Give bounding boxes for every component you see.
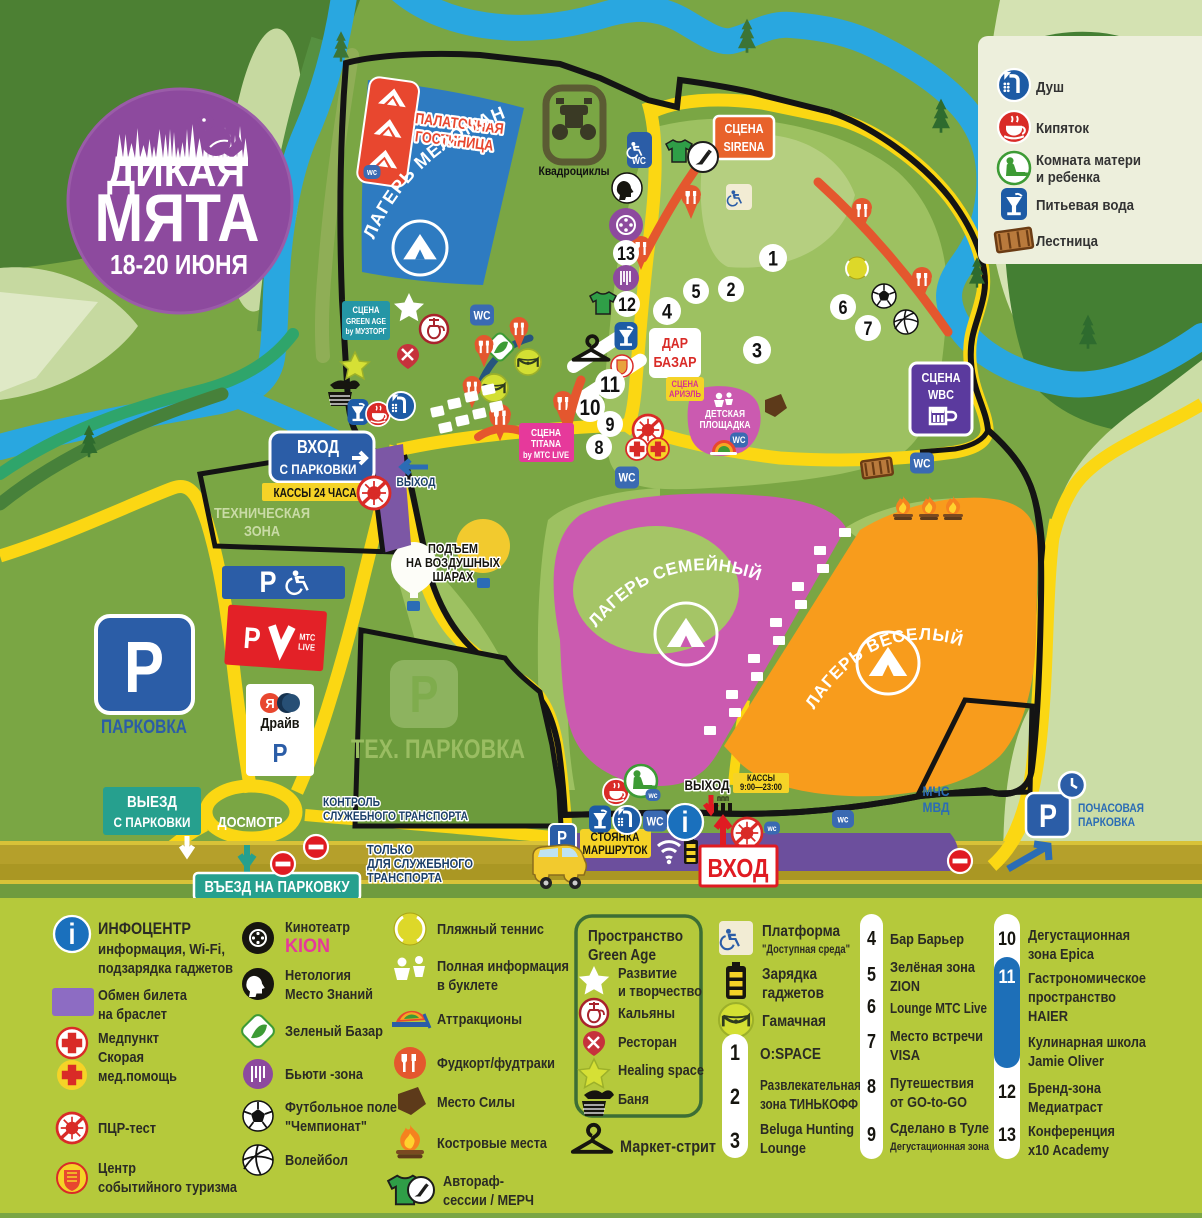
svg-text:Пространство: Пространство [588, 928, 683, 945]
svg-text:Центр: Центр [98, 1160, 136, 1177]
svg-text:пространство: пространство [1028, 989, 1116, 1006]
svg-text:Развитие: Развитие [618, 965, 677, 982]
svg-text:Полная информация: Полная информация [437, 958, 569, 975]
svg-text:Бар Барьер: Бар Барьер [890, 931, 964, 948]
svg-text:событийного туризма: событийного туризма [98, 1179, 238, 1196]
svg-text:ДОСМОТР: ДОСМОТР [218, 814, 283, 831]
svg-text:зона Epica: зона Epica [1028, 946, 1095, 963]
svg-text:Дегустационная: Дегустационная [1028, 927, 1130, 944]
svg-text:ВЫХОД: ВЫХОД [685, 777, 730, 793]
svg-text:WC: WC [619, 470, 636, 484]
svg-text:от GO-to-GO: от GO-to-GO [890, 1094, 967, 1111]
svg-text:Сделано в Туле: Сделано в Туле [890, 1120, 989, 1137]
svg-text:Зелёная зона: Зелёная зона [890, 959, 976, 976]
svg-text:Скорая: Скорая [98, 1049, 144, 1066]
svg-text:ВЫХОД: ВЫХОД [397, 475, 436, 489]
svg-text:4: 4 [867, 928, 877, 950]
svg-text:Фудкорт/фудтраки: Фудкорт/фудтраки [437, 1055, 555, 1072]
svg-text:ДЛЯ СЛУЖЕБНОГО: ДЛЯ СЛУЖЕБНОГО [367, 856, 473, 871]
svg-text:HAIER: HAIER [1028, 1008, 1068, 1025]
svg-text:wc: wc [366, 167, 377, 177]
svg-text:и ребенка: и ребенка [1036, 169, 1101, 186]
svg-text:Бренд-зона: Бренд-зона [1028, 1080, 1102, 1097]
svg-text:МАРШРУТОК: МАРШРУТОК [583, 843, 649, 857]
svg-text:Костровые места: Костровые места [437, 1135, 548, 1152]
svg-text:8: 8 [595, 438, 604, 459]
svg-text:Аттракционы: Аттракционы [437, 1011, 522, 1028]
svg-text:wc: wc [767, 824, 777, 833]
svg-text:С ПАРКОВКИ: С ПАРКОВКИ [280, 461, 357, 477]
svg-text:МЧС: МЧС [923, 783, 950, 799]
svg-text:АРИЭЛЬ: АРИЭЛЬ [669, 389, 701, 399]
svg-text:13: 13 [998, 1125, 1016, 1146]
svg-text:P: P [242, 622, 261, 656]
svg-text:P: P [273, 738, 288, 768]
svg-text:Обмен билета: Обмен билета [98, 987, 188, 1004]
svg-text:18-20 ИЮНЯ: 18-20 ИЮНЯ [110, 249, 248, 280]
svg-text:P: P [260, 566, 277, 599]
svg-text:Место Знаний: Место Знаний [285, 986, 373, 1003]
svg-text:Green Age: Green Age [588, 947, 656, 964]
svg-text:i: i [69, 918, 76, 951]
svg-text:Гамачная: Гамачная [762, 1013, 826, 1030]
svg-text:МВД: МВД [923, 799, 950, 815]
svg-text:Конференция: Конференция [1028, 1123, 1115, 1140]
svg-text:WBC: WBC [928, 387, 955, 402]
svg-text:Пляжный теннис: Пляжный теннис [437, 921, 544, 938]
svg-text:Кипяток: Кипяток [1036, 120, 1089, 137]
svg-text:ТЕХНИЧЕСКАЯ: ТЕХНИЧЕСКАЯ [214, 505, 310, 522]
svg-text:СЦЕНА: СЦЕНА [672, 379, 699, 389]
svg-text:"Доступная среда": "Доступная среда" [762, 942, 850, 956]
svg-text:Лестница: Лестница [1036, 233, 1099, 250]
svg-text:ДАР: ДАР [662, 335, 688, 352]
svg-text:ппп: ппп [717, 794, 729, 803]
svg-text:2: 2 [727, 280, 736, 301]
svg-text:9:00—23:00: 9:00—23:00 [740, 782, 782, 792]
svg-text:by МТС LIVE: by МТС LIVE [523, 450, 569, 460]
svg-text:WC: WC [632, 156, 646, 167]
svg-text:Дегустационная зона: Дегустационная зона [890, 1141, 990, 1153]
svg-text:P: P [124, 628, 164, 708]
svg-text:Я: Я [265, 696, 274, 711]
svg-text:Медпункт: Медпункт [98, 1030, 159, 1047]
svg-text:8: 8 [867, 1076, 876, 1098]
svg-text:С ПАРКОВКИ: С ПАРКОВКИ [114, 814, 191, 830]
svg-text:Lounge MTC Live: Lounge MTC Live [890, 1000, 987, 1017]
svg-text:ШАРАХ: ШАРАХ [433, 569, 474, 584]
svg-text:Автораф-: Автораф- [443, 1173, 504, 1190]
svg-text:и творчество: и творчество [618, 983, 702, 1000]
svg-text:6: 6 [867, 996, 876, 1018]
svg-text:Lounge: Lounge [760, 1140, 806, 1157]
svg-text:ПАРКОВКА: ПАРКОВКА [101, 717, 187, 738]
svg-text:Нетология: Нетология [285, 967, 351, 984]
svg-text:KION: KION [285, 936, 330, 957]
svg-text:СЦЕНА: СЦЕНА [531, 428, 561, 439]
svg-text:"Чемпионат": "Чемпионат" [285, 1118, 367, 1135]
svg-text:ПАРКОВКА: ПАРКОВКА [1078, 815, 1135, 829]
svg-text:Место Силы: Место Силы [437, 1094, 515, 1111]
svg-text:ЗОНА: ЗОНА [244, 523, 280, 540]
svg-text:Гастрономическое: Гастрономическое [1028, 970, 1146, 987]
svg-text:Маркет-стрит: Маркет-стрит [620, 1137, 716, 1156]
svg-text:5: 5 [692, 282, 701, 303]
svg-text:СЛУЖЕБНОГО ТРАНСПОРТА: СЛУЖЕБНОГО ТРАНСПОРТА [323, 809, 468, 823]
svg-text:ВЫЕЗД: ВЫЕЗД [127, 794, 178, 811]
svg-text:9: 9 [867, 1124, 876, 1146]
svg-text:Комната матери: Комната матери [1036, 152, 1141, 169]
svg-text:P: P [1039, 798, 1057, 834]
svg-text:i: i [682, 806, 689, 839]
svg-text:ТЕХ. ПАРКОВКА: ТЕХ. ПАРКОВКА [351, 734, 525, 764]
svg-text:гаджетов: гаджетов [762, 985, 824, 1002]
svg-text:2: 2 [730, 1084, 740, 1109]
svg-text:сессии / МЕРЧ: сессии / МЕРЧ [443, 1192, 534, 1209]
svg-text:ПЦР-тест: ПЦР-тест [98, 1120, 156, 1137]
svg-text:Beluga Hunting: Beluga Hunting [760, 1121, 854, 1138]
svg-text:4: 4 [662, 301, 672, 324]
svg-text:WC: WC [914, 456, 931, 470]
svg-text:Кинотеатр: Кинотеатр [285, 919, 350, 936]
svg-text:Медиатраст: Медиатраст [1028, 1099, 1103, 1116]
svg-text:WC: WC [474, 308, 491, 322]
svg-text:9: 9 [606, 415, 615, 436]
svg-text:СЦЕНА: СЦЕНА [353, 305, 380, 315]
svg-text:Платформа: Платформа [762, 923, 840, 940]
svg-text:ПЛОЩАДКА: ПЛОЩАДКА [700, 420, 751, 431]
svg-text:11: 11 [600, 372, 620, 397]
svg-text:wc: wc [837, 815, 849, 826]
svg-text:GREEN AGE: GREEN AGE [346, 317, 387, 326]
svg-text:Ресторан: Ресторан [618, 1034, 677, 1051]
svg-text:1: 1 [730, 1040, 740, 1065]
svg-text:информация, Wi-Fi,: информация, Wi-Fi, [98, 941, 225, 958]
svg-text:Драйв: Драйв [261, 715, 300, 732]
svg-text:ТОЛЬКО: ТОЛЬКО [367, 842, 413, 857]
svg-text:Healing space: Healing space [618, 1062, 704, 1079]
svg-text:SIRENA: SIRENA [724, 139, 766, 154]
svg-text:P: P [410, 666, 439, 724]
svg-text:11: 11 [999, 967, 1016, 988]
svg-text:зона ТИНЬКОФФ: зона ТИНЬКОФФ [760, 1096, 858, 1113]
svg-text:Развлекательная: Развлекательная [760, 1077, 861, 1094]
svg-text:wc: wc [648, 791, 658, 800]
svg-text:WC: WC [647, 814, 664, 828]
svg-text:СЦЕНА: СЦЕНА [725, 121, 765, 136]
svg-text:LIVE: LIVE [298, 642, 316, 653]
svg-text:Место встречи: Место встречи [890, 1028, 983, 1045]
svg-text:мед.помощь: мед.помощь [98, 1068, 177, 1085]
svg-text:НА ВОЗДУШНЫХ: НА ВОЗДУШНЫХ [406, 555, 500, 570]
svg-text:O:SPACE: O:SPACE [760, 1046, 821, 1063]
svg-text:КОНТРОЛЬ: КОНТРОЛЬ [323, 795, 380, 809]
svg-text:ТРАНСПОРТА: ТРАНСПОРТА [367, 870, 443, 885]
svg-text:Зарядка: Зарядка [762, 966, 817, 983]
svg-text:Волейбол: Волейбол [285, 1152, 348, 1169]
svg-text:ВЪЕЗД НА ПАРКОВКУ: ВЪЕЗД НА ПАРКОВКУ [205, 879, 351, 896]
svg-text:в буклете: в буклете [437, 977, 498, 994]
svg-text:Кальяны: Кальяны [618, 1005, 675, 1022]
svg-text:by МУЗТОРГ: by МУЗТОРГ [346, 327, 387, 336]
svg-text:ZION: ZION [890, 978, 920, 995]
svg-text:СЦЕНА: СЦЕНА [922, 370, 962, 385]
svg-text:Путешествия: Путешествия [890, 1075, 974, 1092]
svg-text:ДЕТСКАЯ: ДЕТСКАЯ [705, 409, 745, 420]
svg-text:3: 3 [730, 1128, 740, 1153]
svg-text:WC: WC [733, 435, 746, 445]
svg-text:Бьюти -зона: Бьюти -зона [285, 1066, 364, 1083]
svg-text:на браслет: на браслет [98, 1006, 167, 1023]
svg-text:ВХОД: ВХОД [297, 437, 339, 457]
svg-text:1: 1 [768, 248, 778, 271]
svg-text:ВХОД: ВХОД [708, 853, 769, 883]
svg-text:VISA: VISA [890, 1047, 920, 1064]
svg-text:7: 7 [867, 1031, 876, 1053]
svg-text:БАЗАР: БАЗАР [654, 354, 697, 371]
svg-text:подзарядка гаджетов: подзарядка гаджетов [98, 960, 233, 977]
svg-text:Футбольное поле: Футбольное поле [285, 1099, 397, 1116]
svg-text:7: 7 [864, 319, 873, 340]
svg-text:12: 12 [618, 295, 636, 316]
svg-text:13: 13 [617, 244, 635, 265]
svg-text:ИНФОЦЕНТР: ИНФОЦЕНТР [98, 919, 191, 938]
svg-text:Питьевая вода: Питьевая вода [1036, 197, 1135, 214]
svg-text:ПОДЪЕМ: ПОДЪЕМ [428, 541, 478, 556]
svg-text:6: 6 [839, 298, 848, 319]
svg-text:Душ: Душ [1036, 79, 1064, 96]
svg-text:10: 10 [580, 395, 601, 420]
svg-text:10: 10 [998, 929, 1016, 950]
svg-text:TITANA: TITANA [531, 439, 561, 450]
svg-text:Зеленый Базар: Зеленый Базар [285, 1023, 383, 1040]
svg-text:Jamie Oliver: Jamie Oliver [1028, 1053, 1104, 1070]
svg-text:МЯТА: МЯТА [95, 180, 260, 256]
svg-text:Баня: Баня [618, 1091, 649, 1108]
svg-text:x10 Academy: x10 Academy [1028, 1142, 1110, 1159]
svg-text:3: 3 [752, 340, 762, 363]
svg-text:ПОЧАСОВАЯ: ПОЧАСОВАЯ [1078, 801, 1144, 815]
svg-text:КАССЫ 24 ЧАСА: КАССЫ 24 ЧАСА [274, 485, 357, 500]
svg-text:12: 12 [998, 1082, 1016, 1103]
svg-text:5: 5 [867, 964, 876, 986]
svg-text:Квадроциклы: Квадроциклы [539, 164, 610, 178]
svg-text:Кулинарная школа: Кулинарная школа [1028, 1034, 1147, 1051]
